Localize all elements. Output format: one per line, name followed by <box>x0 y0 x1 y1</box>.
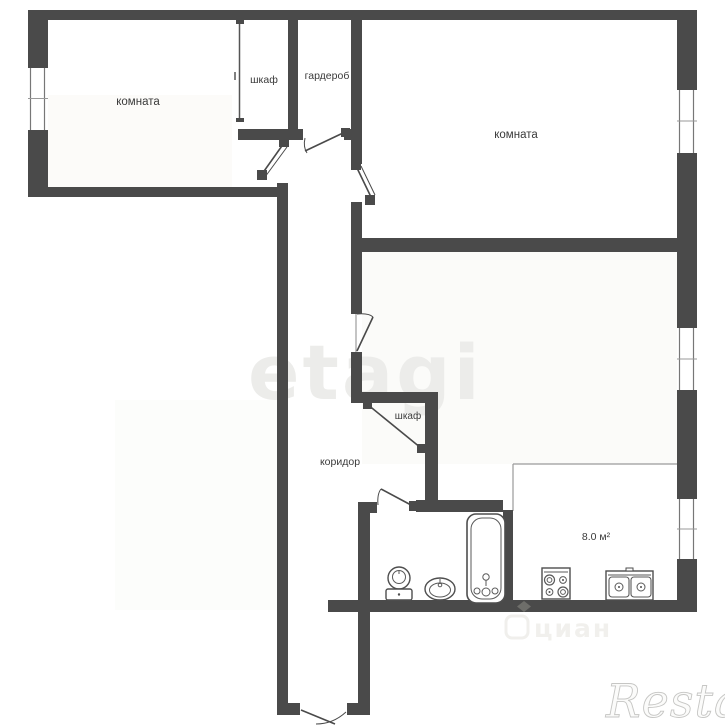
window <box>677 328 697 390</box>
wall-segment <box>351 238 677 252</box>
washbasin-icon <box>425 578 455 600</box>
floor-plan: etagi <box>0 0 725 725</box>
window <box>677 499 697 559</box>
corridor-label: коридор <box>320 456 360 468</box>
wall-segment <box>358 612 370 715</box>
closet-top-label: шкаф <box>250 74 278 86</box>
bathtub-icon <box>467 514 505 603</box>
closet-mid-label: шкаф <box>395 410 421 422</box>
watermark-cian-text: циан <box>534 614 612 643</box>
toilet-icon <box>386 567 412 600</box>
floor-plan-page: etagi <box>0 0 725 725</box>
window <box>677 90 697 153</box>
wall-segment <box>358 513 370 600</box>
wall-segment <box>351 352 362 392</box>
wall-segment <box>358 502 377 513</box>
wall-segment <box>288 20 298 130</box>
wall-segment <box>677 153 697 328</box>
wall-segment <box>677 390 697 499</box>
wall-segment <box>677 20 697 90</box>
kitchen-area-label: 8.0 м² <box>582 531 611 543</box>
wall-segment <box>28 187 283 197</box>
wall-segment <box>238 129 303 140</box>
room-label-top-right: комната <box>494 129 538 141</box>
kitchen-sink-icon <box>606 568 653 600</box>
stove-icon <box>542 568 570 599</box>
wall-segment <box>351 202 362 314</box>
wall-segment <box>28 130 48 197</box>
watermark-restate: Restate <box>605 674 725 725</box>
wall-segment <box>277 183 288 715</box>
wall-segment <box>425 403 438 502</box>
wall-segment <box>277 703 300 715</box>
room-label-top-left: комната <box>116 96 160 108</box>
tint-bottom-left <box>115 400 277 610</box>
wall-segment <box>347 703 370 715</box>
wall-segment <box>416 500 503 512</box>
window <box>28 68 48 130</box>
tint-room1 <box>48 95 232 187</box>
wardrobe-label: гардероб <box>305 70 350 82</box>
wall-segment <box>28 20 48 68</box>
wall-segment <box>328 600 697 612</box>
wall-segment <box>351 20 362 130</box>
wall-segment <box>28 10 697 20</box>
